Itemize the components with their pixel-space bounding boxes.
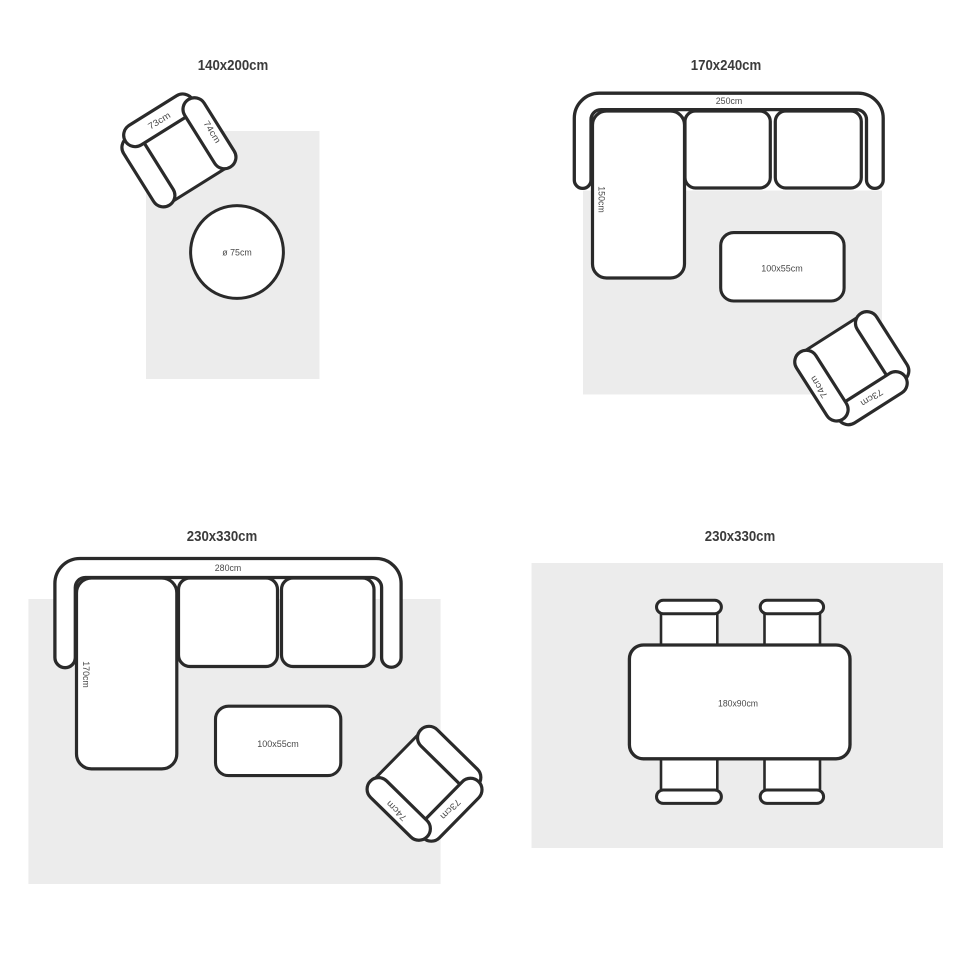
svg-text:250cm: 250cm	[716, 96, 743, 106]
svg-text:170cm: 170cm	[81, 661, 91, 688]
svg-text:140x200cm: 140x200cm	[198, 57, 269, 74]
svg-text:170x240cm: 170x240cm	[691, 57, 762, 74]
svg-text:150cm: 150cm	[597, 186, 607, 213]
svg-text:100x55cm: 100x55cm	[257, 739, 299, 749]
svg-text:ø 75cm: ø 75cm	[222, 248, 252, 258]
svg-text:230x330cm: 230x330cm	[187, 528, 258, 545]
svg-text:230x330cm: 230x330cm	[705, 528, 776, 545]
svg-text:280cm: 280cm	[215, 563, 242, 573]
svg-text:180x90cm: 180x90cm	[718, 699, 758, 709]
svg-text:100x55cm: 100x55cm	[761, 264, 803, 274]
